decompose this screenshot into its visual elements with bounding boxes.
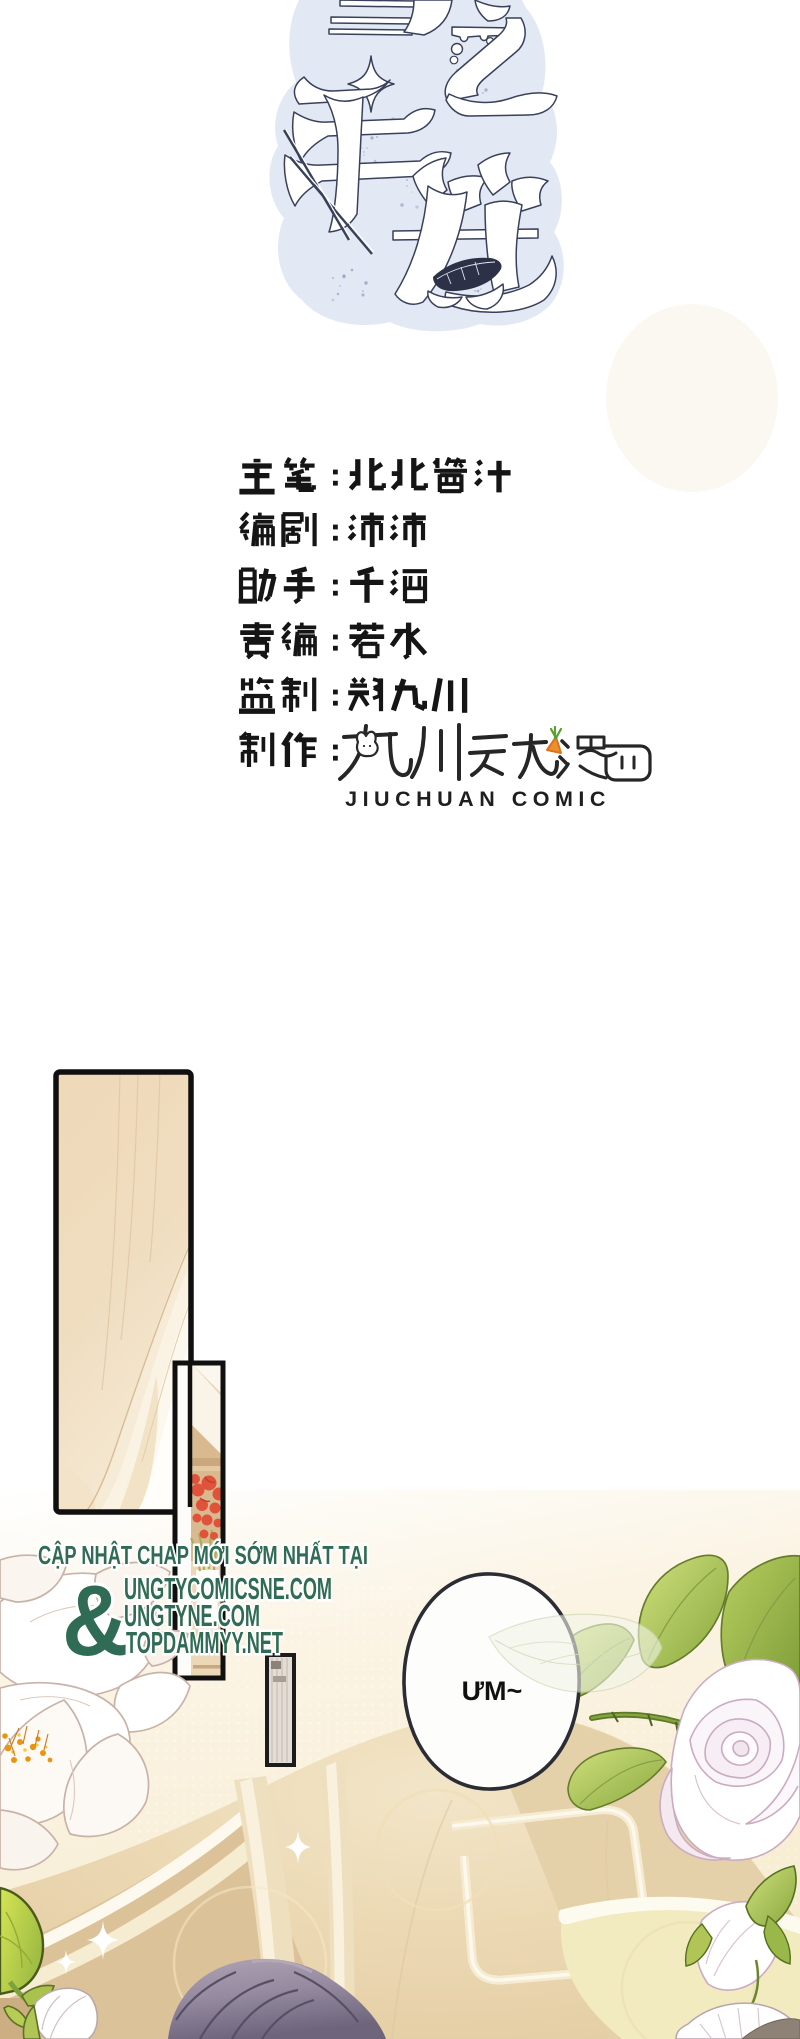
svg-text:ƯM~: ƯM~ <box>462 1676 523 1706</box>
svg-text:&: & <box>62 1565 128 1676</box>
svg-text:TOPDAMMYY.NET: TOPDAMMYY.NET <box>126 1625 283 1660</box>
svg-text:JIUCHUAN COMIC: JIUCHUAN COMIC <box>345 787 611 811</box>
